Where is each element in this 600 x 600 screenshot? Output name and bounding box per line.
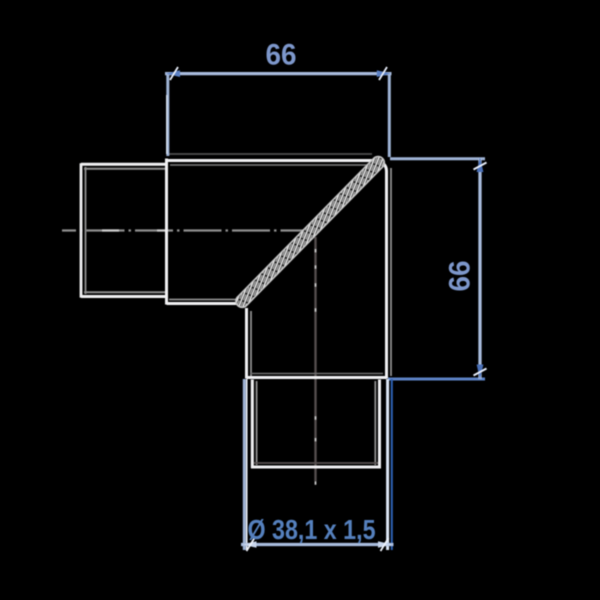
svg-text:66: 66: [444, 261, 477, 292]
svg-text:66: 66: [266, 39, 297, 72]
svg-text:Ø 38,1 x 1,5: Ø 38,1 x 1,5: [248, 514, 376, 545]
